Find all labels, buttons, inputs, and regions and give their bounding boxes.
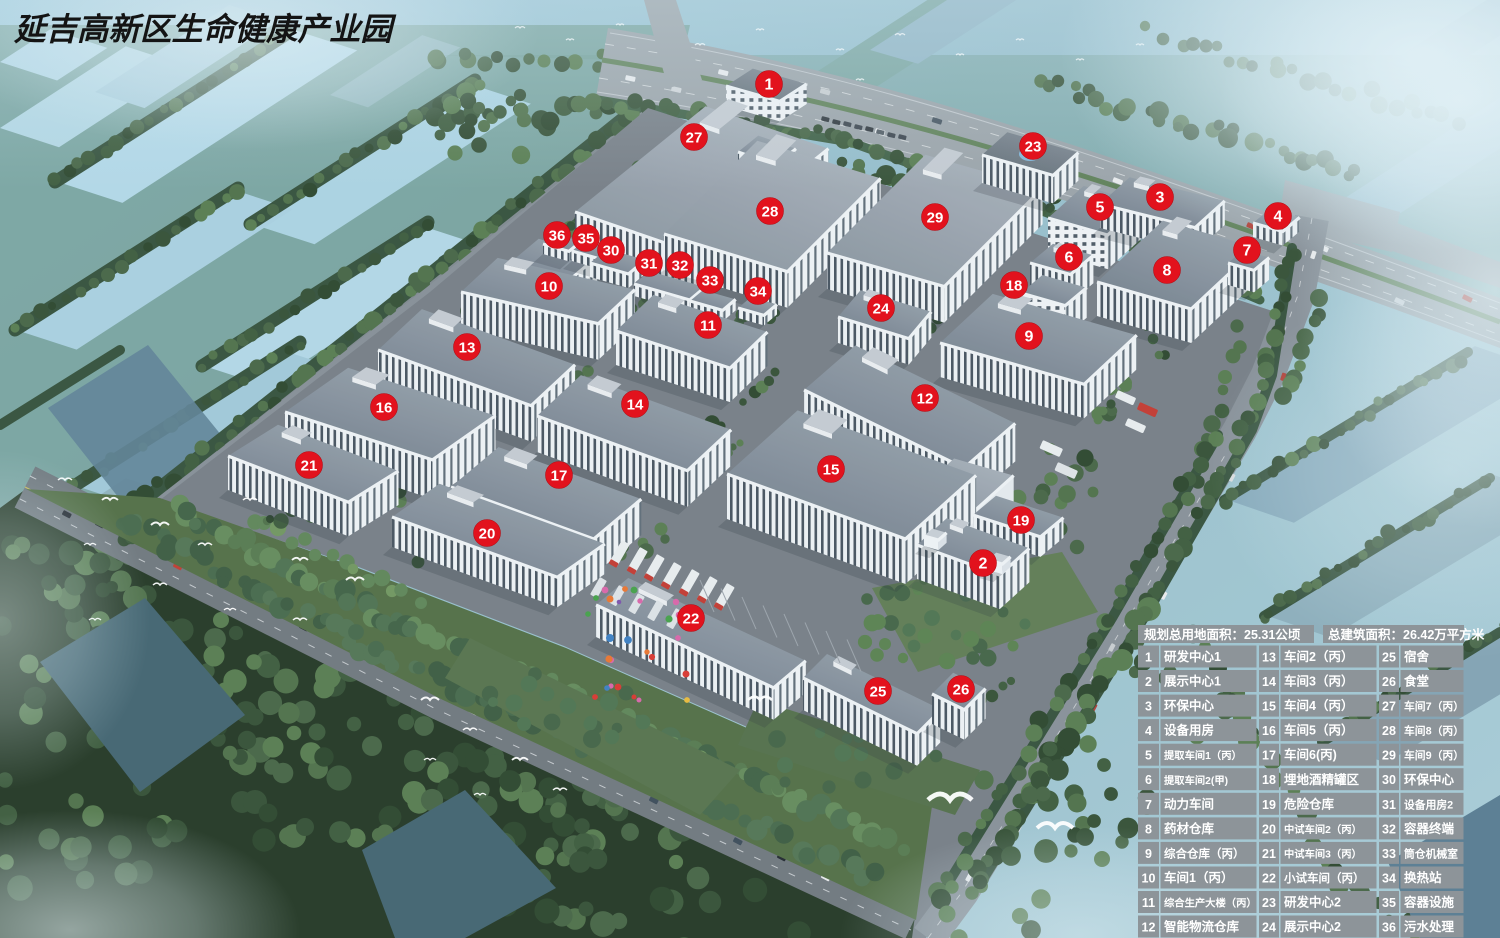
svg-text:车间8（丙）: 车间8（丙） <box>1404 724 1464 738</box>
svg-text:埋地酒精罐区: 埋地酒精罐区 <box>1284 772 1360 787</box>
svg-text:宿舍: 宿舍 <box>1404 649 1430 664</box>
svg-text:7: 7 <box>1145 798 1152 812</box>
svg-text:车间6(丙): 车间6(丙) <box>1284 747 1337 762</box>
svg-text:34: 34 <box>750 284 767 301</box>
svg-text:筒仓机械室: 筒仓机械室 <box>1404 846 1458 860</box>
svg-text:车间4（丙）: 车间4（丙） <box>1284 698 1353 713</box>
svg-text:31: 31 <box>641 256 658 273</box>
svg-text:12: 12 <box>917 391 934 408</box>
svg-text:36: 36 <box>1382 921 1396 935</box>
svg-text:环保中心: 环保中心 <box>1164 698 1215 713</box>
svg-text:延吉高新区生命健康产业园: 延吉高新区生命健康产业园 <box>13 11 397 47</box>
svg-text:换热站: 换热站 <box>1404 870 1442 885</box>
svg-text:25: 25 <box>870 684 887 701</box>
svg-text:35: 35 <box>578 231 595 248</box>
svg-text:18: 18 <box>1262 773 1276 787</box>
svg-text:19: 19 <box>1262 798 1276 812</box>
svg-text:污水处理: 污水处理 <box>1404 919 1455 934</box>
svg-text:24: 24 <box>873 301 890 318</box>
svg-text:综合仓库（丙）: 综合仓库（丙） <box>1164 846 1245 860</box>
svg-text:14: 14 <box>1262 675 1276 689</box>
svg-text:36: 36 <box>549 228 566 245</box>
svg-text:展示中心2: 展示中心2 <box>1284 919 1341 934</box>
svg-text:车间2（丙）: 车间2（丙） <box>1284 649 1353 664</box>
svg-text:25: 25 <box>1382 651 1396 665</box>
svg-text:30: 30 <box>603 243 620 260</box>
svg-text:11: 11 <box>1142 896 1155 910</box>
svg-text:29: 29 <box>1382 749 1396 763</box>
svg-text:35: 35 <box>1382 896 1396 910</box>
svg-text:车间1（丙）: 车间1（丙） <box>1164 870 1233 885</box>
svg-text:环保中心: 环保中心 <box>1404 772 1455 787</box>
svg-text:16: 16 <box>376 400 393 417</box>
svg-text:33: 33 <box>702 273 719 290</box>
svg-text:中试车间3（丙）: 中试车间3（丙） <box>1284 847 1362 860</box>
svg-text:26: 26 <box>1382 675 1396 689</box>
svg-text:7: 7 <box>1243 243 1252 260</box>
svg-text:21: 21 <box>1262 847 1276 861</box>
svg-text:10: 10 <box>541 279 558 296</box>
svg-text:1: 1 <box>765 77 774 94</box>
svg-text:6: 6 <box>1065 250 1074 267</box>
svg-text:23: 23 <box>1025 139 1042 156</box>
svg-text:9: 9 <box>1145 847 1152 861</box>
svg-text:15: 15 <box>823 462 840 479</box>
svg-text:15: 15 <box>1262 700 1276 714</box>
svg-text:4: 4 <box>1145 724 1152 738</box>
svg-text:20: 20 <box>1262 822 1276 836</box>
svg-text:8: 8 <box>1163 263 1172 280</box>
svg-text:研发中心2: 研发中心2 <box>1284 895 1341 910</box>
svg-text:容器设施: 容器设施 <box>1403 895 1455 910</box>
svg-text:研发中心1: 研发中心1 <box>1164 649 1221 664</box>
svg-text:提取车间2(甲): 提取车间2(甲) <box>1164 774 1228 787</box>
svg-text:26: 26 <box>953 682 970 699</box>
svg-text:32: 32 <box>672 258 689 275</box>
svg-text:17: 17 <box>551 468 568 485</box>
svg-text:动力车间: 动力车间 <box>1164 796 1214 811</box>
svg-text:5: 5 <box>1096 200 1105 217</box>
svg-text:4: 4 <box>1274 209 1283 226</box>
svg-text:27: 27 <box>686 130 703 147</box>
svg-text:6: 6 <box>1145 773 1152 787</box>
svg-text:车间9（丙）: 车间9（丙） <box>1404 748 1464 762</box>
svg-text:22: 22 <box>1262 872 1276 886</box>
svg-text:30: 30 <box>1382 773 1396 787</box>
svg-text:18: 18 <box>1006 278 1023 295</box>
svg-text:12: 12 <box>1142 921 1156 935</box>
svg-text:21: 21 <box>301 458 318 475</box>
svg-text:展示中心1: 展示中心1 <box>1164 674 1221 689</box>
svg-text:29: 29 <box>927 210 944 227</box>
svg-text:2: 2 <box>1145 675 1152 689</box>
svg-text:10: 10 <box>1142 872 1156 886</box>
svg-text:5: 5 <box>1145 749 1152 763</box>
svg-text:设备用房2: 设备用房2 <box>1404 797 1453 811</box>
svg-text:综合生产大楼（丙）: 综合生产大楼（丙） <box>1164 897 1257 910</box>
svg-text:2: 2 <box>979 556 988 573</box>
svg-text:总建筑面积：26.42万平方米: 总建筑面积：26.42万平方米 <box>1328 627 1485 642</box>
svg-text:28: 28 <box>762 204 779 221</box>
svg-text:车间7（丙）: 车间7（丙） <box>1404 699 1464 713</box>
svg-text:16: 16 <box>1262 724 1276 738</box>
svg-text:27: 27 <box>1382 700 1396 714</box>
svg-text:设备用房: 设备用房 <box>1164 723 1214 738</box>
svg-text:食堂: 食堂 <box>1403 674 1429 689</box>
svg-text:9: 9 <box>1025 329 1034 346</box>
svg-text:13: 13 <box>1262 651 1276 665</box>
svg-text:28: 28 <box>1382 724 1396 738</box>
svg-text:33: 33 <box>1382 847 1396 861</box>
svg-text:危险仓库: 危险仓库 <box>1283 796 1335 811</box>
svg-text:14: 14 <box>627 397 644 414</box>
svg-text:17: 17 <box>1262 749 1276 763</box>
svg-text:22: 22 <box>683 611 700 628</box>
svg-text:32: 32 <box>1382 822 1396 836</box>
svg-text:1: 1 <box>1145 651 1152 665</box>
svg-text:34: 34 <box>1382 872 1396 886</box>
svg-text:规划总用地面积：25.31公顷: 规划总用地面积：25.31公顷 <box>1144 627 1301 642</box>
svg-text:智能物流仓库: 智能物流仓库 <box>1163 919 1240 934</box>
svg-text:车间5（丙）: 车间5（丙） <box>1284 723 1353 738</box>
svg-text:20: 20 <box>479 526 496 543</box>
svg-text:车间3（丙）: 车间3（丙） <box>1284 674 1353 689</box>
svg-text:3: 3 <box>1156 190 1165 207</box>
svg-text:24: 24 <box>1262 921 1276 935</box>
svg-text:容器终端: 容器终端 <box>1403 821 1455 836</box>
svg-text:8: 8 <box>1145 822 1152 836</box>
svg-text:3: 3 <box>1145 700 1152 714</box>
svg-text:13: 13 <box>459 340 476 357</box>
svg-text:23: 23 <box>1262 896 1276 910</box>
svg-text:提取车间1（丙）: 提取车间1（丙） <box>1164 749 1242 762</box>
svg-text:11: 11 <box>700 318 716 335</box>
svg-text:小试车间（丙）: 小试车间（丙） <box>1283 871 1365 885</box>
svg-text:19: 19 <box>1013 513 1030 530</box>
svg-text:31: 31 <box>1382 798 1396 812</box>
svg-text:中试车间2（丙）: 中试车间2（丙） <box>1284 823 1362 836</box>
svg-text:药材仓库: 药材仓库 <box>1164 821 1215 836</box>
